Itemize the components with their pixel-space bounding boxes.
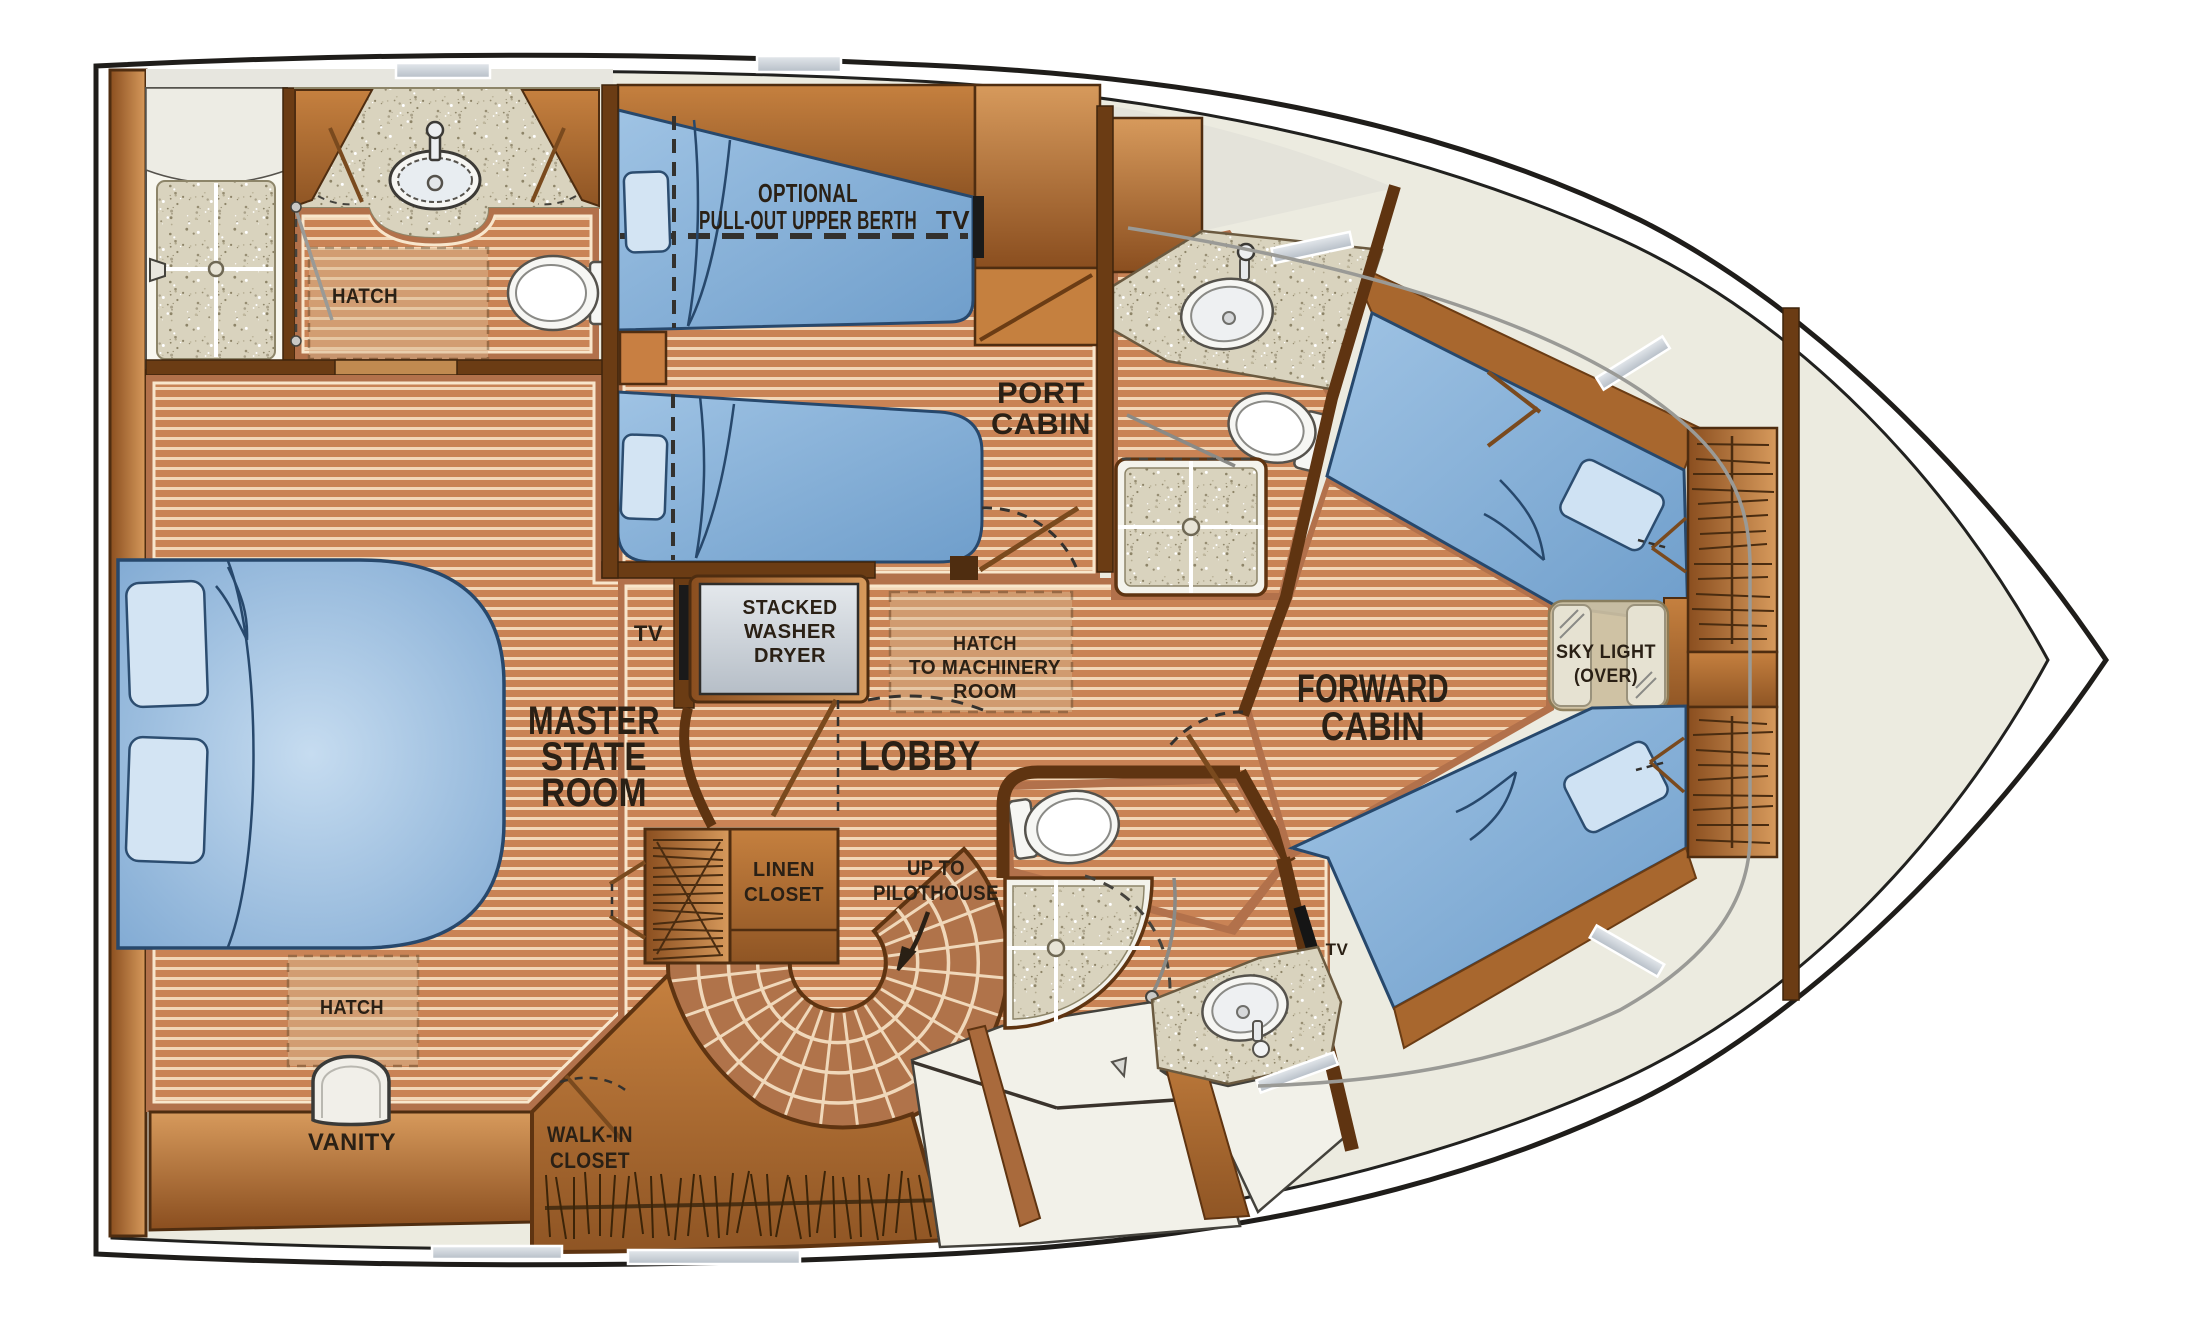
svg-text:HATCH: HATCH bbox=[953, 633, 1017, 655]
svg-text:TV: TV bbox=[634, 621, 663, 646]
svg-text:HATCH: HATCH bbox=[332, 285, 398, 308]
svg-text:STACKED: STACKED bbox=[743, 597, 838, 619]
svg-text:HATCH: HATCH bbox=[320, 997, 384, 1019]
svg-text:LOBBY: LOBBY bbox=[859, 732, 981, 779]
svg-text:CABIN: CABIN bbox=[991, 408, 1091, 441]
svg-text:ROOM: ROOM bbox=[541, 771, 647, 815]
svg-text:OPTIONAL: OPTIONAL bbox=[758, 178, 858, 208]
svg-text:CABIN: CABIN bbox=[1321, 705, 1425, 749]
svg-text:DRYER: DRYER bbox=[754, 645, 826, 667]
svg-text:PILOTHOUSE: PILOTHOUSE bbox=[873, 882, 999, 905]
svg-text:PULL-OUT UPPER BERTH: PULL-OUT UPPER BERTH bbox=[699, 205, 917, 235]
svg-text:WALK-IN: WALK-IN bbox=[547, 1122, 633, 1147]
svg-text:WASHER: WASHER bbox=[744, 621, 836, 643]
svg-text:CLOSET: CLOSET bbox=[550, 1148, 630, 1173]
svg-text:ROOM: ROOM bbox=[953, 681, 1017, 703]
svg-text:PORT: PORT bbox=[997, 377, 1085, 410]
svg-text:(OVER): (OVER) bbox=[1574, 666, 1638, 687]
svg-text:TV: TV bbox=[1326, 940, 1349, 959]
svg-text:CLOSET: CLOSET bbox=[744, 884, 824, 906]
svg-text:TV: TV bbox=[936, 205, 970, 235]
svg-text:LINEN: LINEN bbox=[753, 859, 815, 881]
svg-text:VANITY: VANITY bbox=[308, 1129, 396, 1156]
svg-text:TO MACHINERY: TO MACHINERY bbox=[909, 657, 1061, 679]
svg-text:SKY LIGHT: SKY LIGHT bbox=[1556, 642, 1656, 663]
svg-text:UP TO: UP TO bbox=[907, 857, 965, 880]
